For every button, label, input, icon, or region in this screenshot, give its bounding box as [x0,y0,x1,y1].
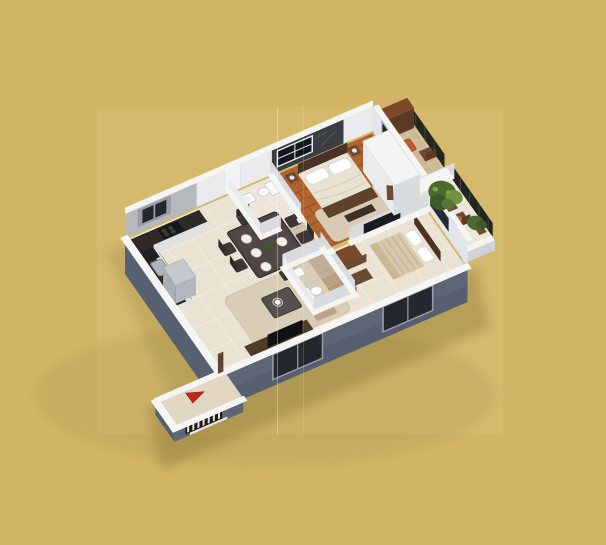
page-background [0,0,606,545]
floorplan-render [0,0,606,545]
